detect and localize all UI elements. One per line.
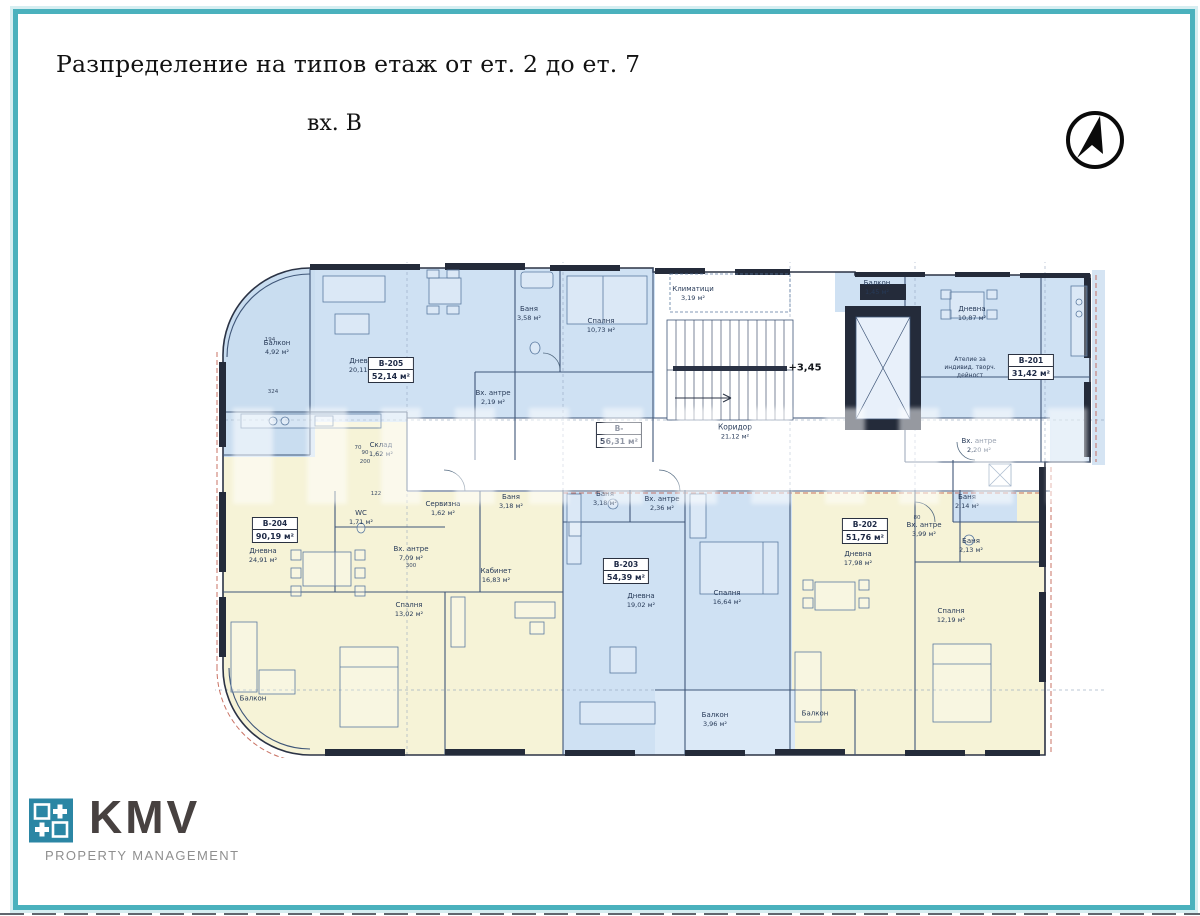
floor-plan-page: Разпределение на типов етаж от ет. 2 до … [0,0,1200,916]
room-label-b205-antre: Вх. антре2,19 м² [475,389,510,407]
room-label-b202-antre: Вх. антре3,99 м² [906,521,941,539]
dim-label: 324 [268,389,279,395]
room-label-b201-banya: Баня2,14 м² [955,493,979,511]
elevator-shaft [845,306,921,430]
kmv-logo-icon [29,798,73,843]
room-label-b204-spalnya: Спалня13,02 м² [395,601,423,619]
dim-label: 200 [360,459,371,465]
room-label-b201-atelie: Ателие за индивид. творч. дейност [939,356,1001,380]
bottom-cut-artifact [0,913,1200,915]
room-label-b204-servizna: Сервизна1,62 м² [426,500,461,518]
stairs [667,320,793,420]
room-label-b202-dnevna: Дневна17,98 м² [844,550,872,568]
room-label-b203-balkon: Балкон3,96 м² [702,711,729,729]
page-title: Разпределение на типов етаж от ет. 2 до … [56,50,640,78]
room-label-b201-antre: Вх. антре2,20 м² [961,437,996,455]
room-label-b204-dnevna: Дневна24,91 м² [249,547,277,565]
unit-box-b205: В-20552,14 м² [368,357,414,383]
room-label-b204-sklad: Склад1,62 м² [369,441,393,459]
room-label-b203-spalnya: Спалня16,64 м² [713,589,741,607]
room-label-corridor: Коридор21,12 м² [718,423,752,442]
kmv-logo: KMV PROPERTY MANAGEMENT [29,796,289,866]
entrance-subtitle: вх. В [307,111,362,136]
kmv-logo-text: KMV [89,790,200,844]
floor-plan-drawing: Балкон4,92 м² Дневна20,11 м² Баня3,58 м²… [215,262,1105,758]
unit-box-core: В-56,31 м² [596,422,642,448]
room-label-b205-banya: Баня3,58 м² [517,305,541,323]
unit-box-b202: В-20251,76 м² [842,518,888,544]
room-label-b204-antre: Вх. антре7,09 м² [393,545,428,563]
room-label-b203-dnevna: Дневна19,02 м² [627,592,655,610]
room-label-b201-dnevna: Дневна10,87 м² [958,305,986,323]
scan-edge-strip [1092,270,1105,465]
dim-label: 90 [362,450,369,456]
room-label-b203-antre: Вх. антре2,36 м² [644,495,679,513]
dim-label: 122 [371,491,382,497]
room-label-b202-balkon: Балкон [802,709,829,718]
kmv-logo-subtext: PROPERTY MANAGEMENT [45,848,239,863]
unit-box-b201: В-20131,42 м² [1008,354,1054,380]
room-label-balkon-top: Балкон1,45 м² [864,279,891,297]
room-label-hvac: Климатици3,19 м² [672,285,714,303]
unit-box-b204: В-20490,19 м² [252,517,298,543]
room-label-b202-spalnya: Спалня12,19 м² [937,607,965,625]
dim-label: 300 [406,563,417,569]
room-label-b205-spalnya: Спалня10,73 м² [587,317,615,335]
north-arrow-icon [1064,109,1126,171]
dim-label: 194 [265,337,276,343]
dim-label: 80 [914,515,921,521]
room-label-b202-banya: Баня2,13 м² [959,537,983,555]
room-label-b204-balkon: Балкон [240,694,267,703]
unit-box-b203: В-20354,39 м² [603,558,649,584]
room-label-b204-wc: WC1,71 м² [349,509,373,527]
level-mark: +3,45 [788,363,821,374]
room-label-b203-banya: Баня3,18 м² [593,490,617,508]
room-label-b204-kabinet: Кабинет16,83 м² [480,567,511,585]
room-label-b204-banya: Баня3,18 м² [499,493,523,511]
dim-label: 70 [355,445,362,451]
